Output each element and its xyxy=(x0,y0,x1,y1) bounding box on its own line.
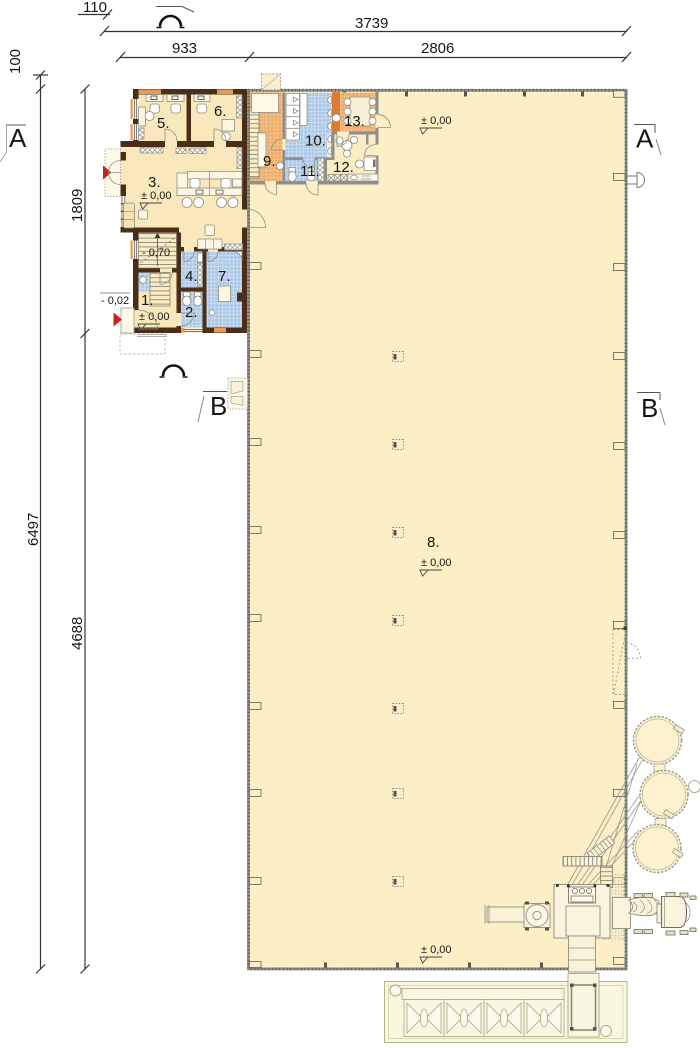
svg-text:1.: 1. xyxy=(141,292,154,309)
svg-text:A: A xyxy=(9,123,27,153)
svg-text:± 0,00: ± 0,00 xyxy=(421,115,452,127)
svg-text:11.: 11. xyxy=(300,163,320,180)
svg-text:10.: 10. xyxy=(305,133,326,150)
svg-text:- 0,02: - 0,02 xyxy=(101,295,129,307)
svg-text:2806: 2806 xyxy=(421,40,454,57)
svg-text:3.: 3. xyxy=(148,174,161,191)
svg-text:± 0,00: ± 0,00 xyxy=(139,311,170,323)
svg-text:933: 933 xyxy=(172,40,197,57)
svg-text:- 0,70: - 0,70 xyxy=(142,247,170,259)
svg-text:1809: 1809 xyxy=(69,189,86,222)
svg-text:± 0,00: ± 0,00 xyxy=(421,944,452,956)
svg-text:110: 110 xyxy=(83,0,107,16)
svg-text:4.: 4. xyxy=(185,268,198,285)
svg-text:12.: 12. xyxy=(333,159,354,176)
svg-text:3739: 3739 xyxy=(355,15,388,32)
svg-text:± 0,00: ± 0,00 xyxy=(421,557,452,569)
svg-text:A: A xyxy=(636,124,654,154)
svg-text:6497: 6497 xyxy=(25,513,42,546)
svg-text:9.: 9. xyxy=(263,153,276,170)
svg-text:100: 100 xyxy=(7,49,24,74)
svg-text:± 0,00: ± 0,00 xyxy=(141,190,172,202)
svg-text:4688: 4688 xyxy=(69,617,86,650)
svg-text:B: B xyxy=(641,393,658,423)
svg-text:7.: 7. xyxy=(218,268,231,285)
svg-text:2.: 2. xyxy=(185,304,198,321)
svg-text:13.: 13. xyxy=(344,113,365,130)
svg-text:8.: 8. xyxy=(427,534,440,551)
svg-text:B: B xyxy=(210,391,227,421)
svg-text:6.: 6. xyxy=(214,103,227,120)
